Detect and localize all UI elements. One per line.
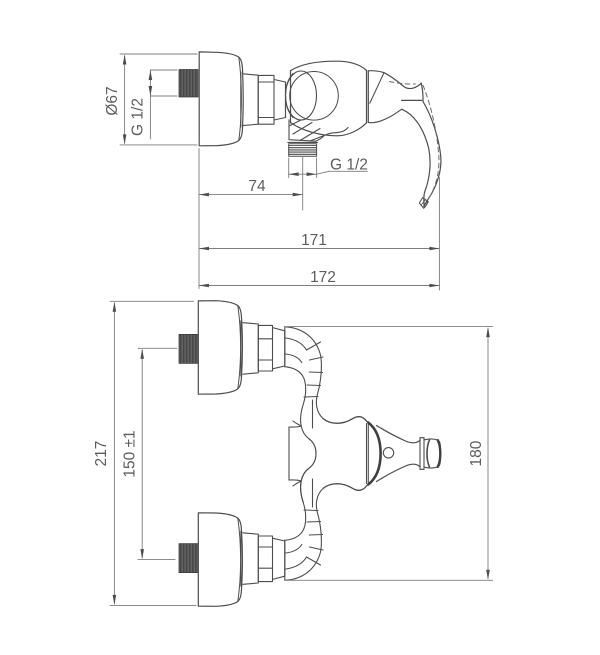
svg-text:74: 74 <box>248 178 266 195</box>
svg-text:150 ±1: 150 ±1 <box>122 430 139 477</box>
svg-text:G 1/2: G 1/2 <box>130 98 147 136</box>
svg-text:217: 217 <box>93 441 110 467</box>
svg-text:Ø67: Ø67 <box>104 86 121 115</box>
svg-text:G 1/2: G 1/2 <box>330 156 368 173</box>
svg-text:171: 171 <box>301 232 327 249</box>
svg-text:180: 180 <box>468 440 485 466</box>
svg-text:172: 172 <box>310 269 336 286</box>
